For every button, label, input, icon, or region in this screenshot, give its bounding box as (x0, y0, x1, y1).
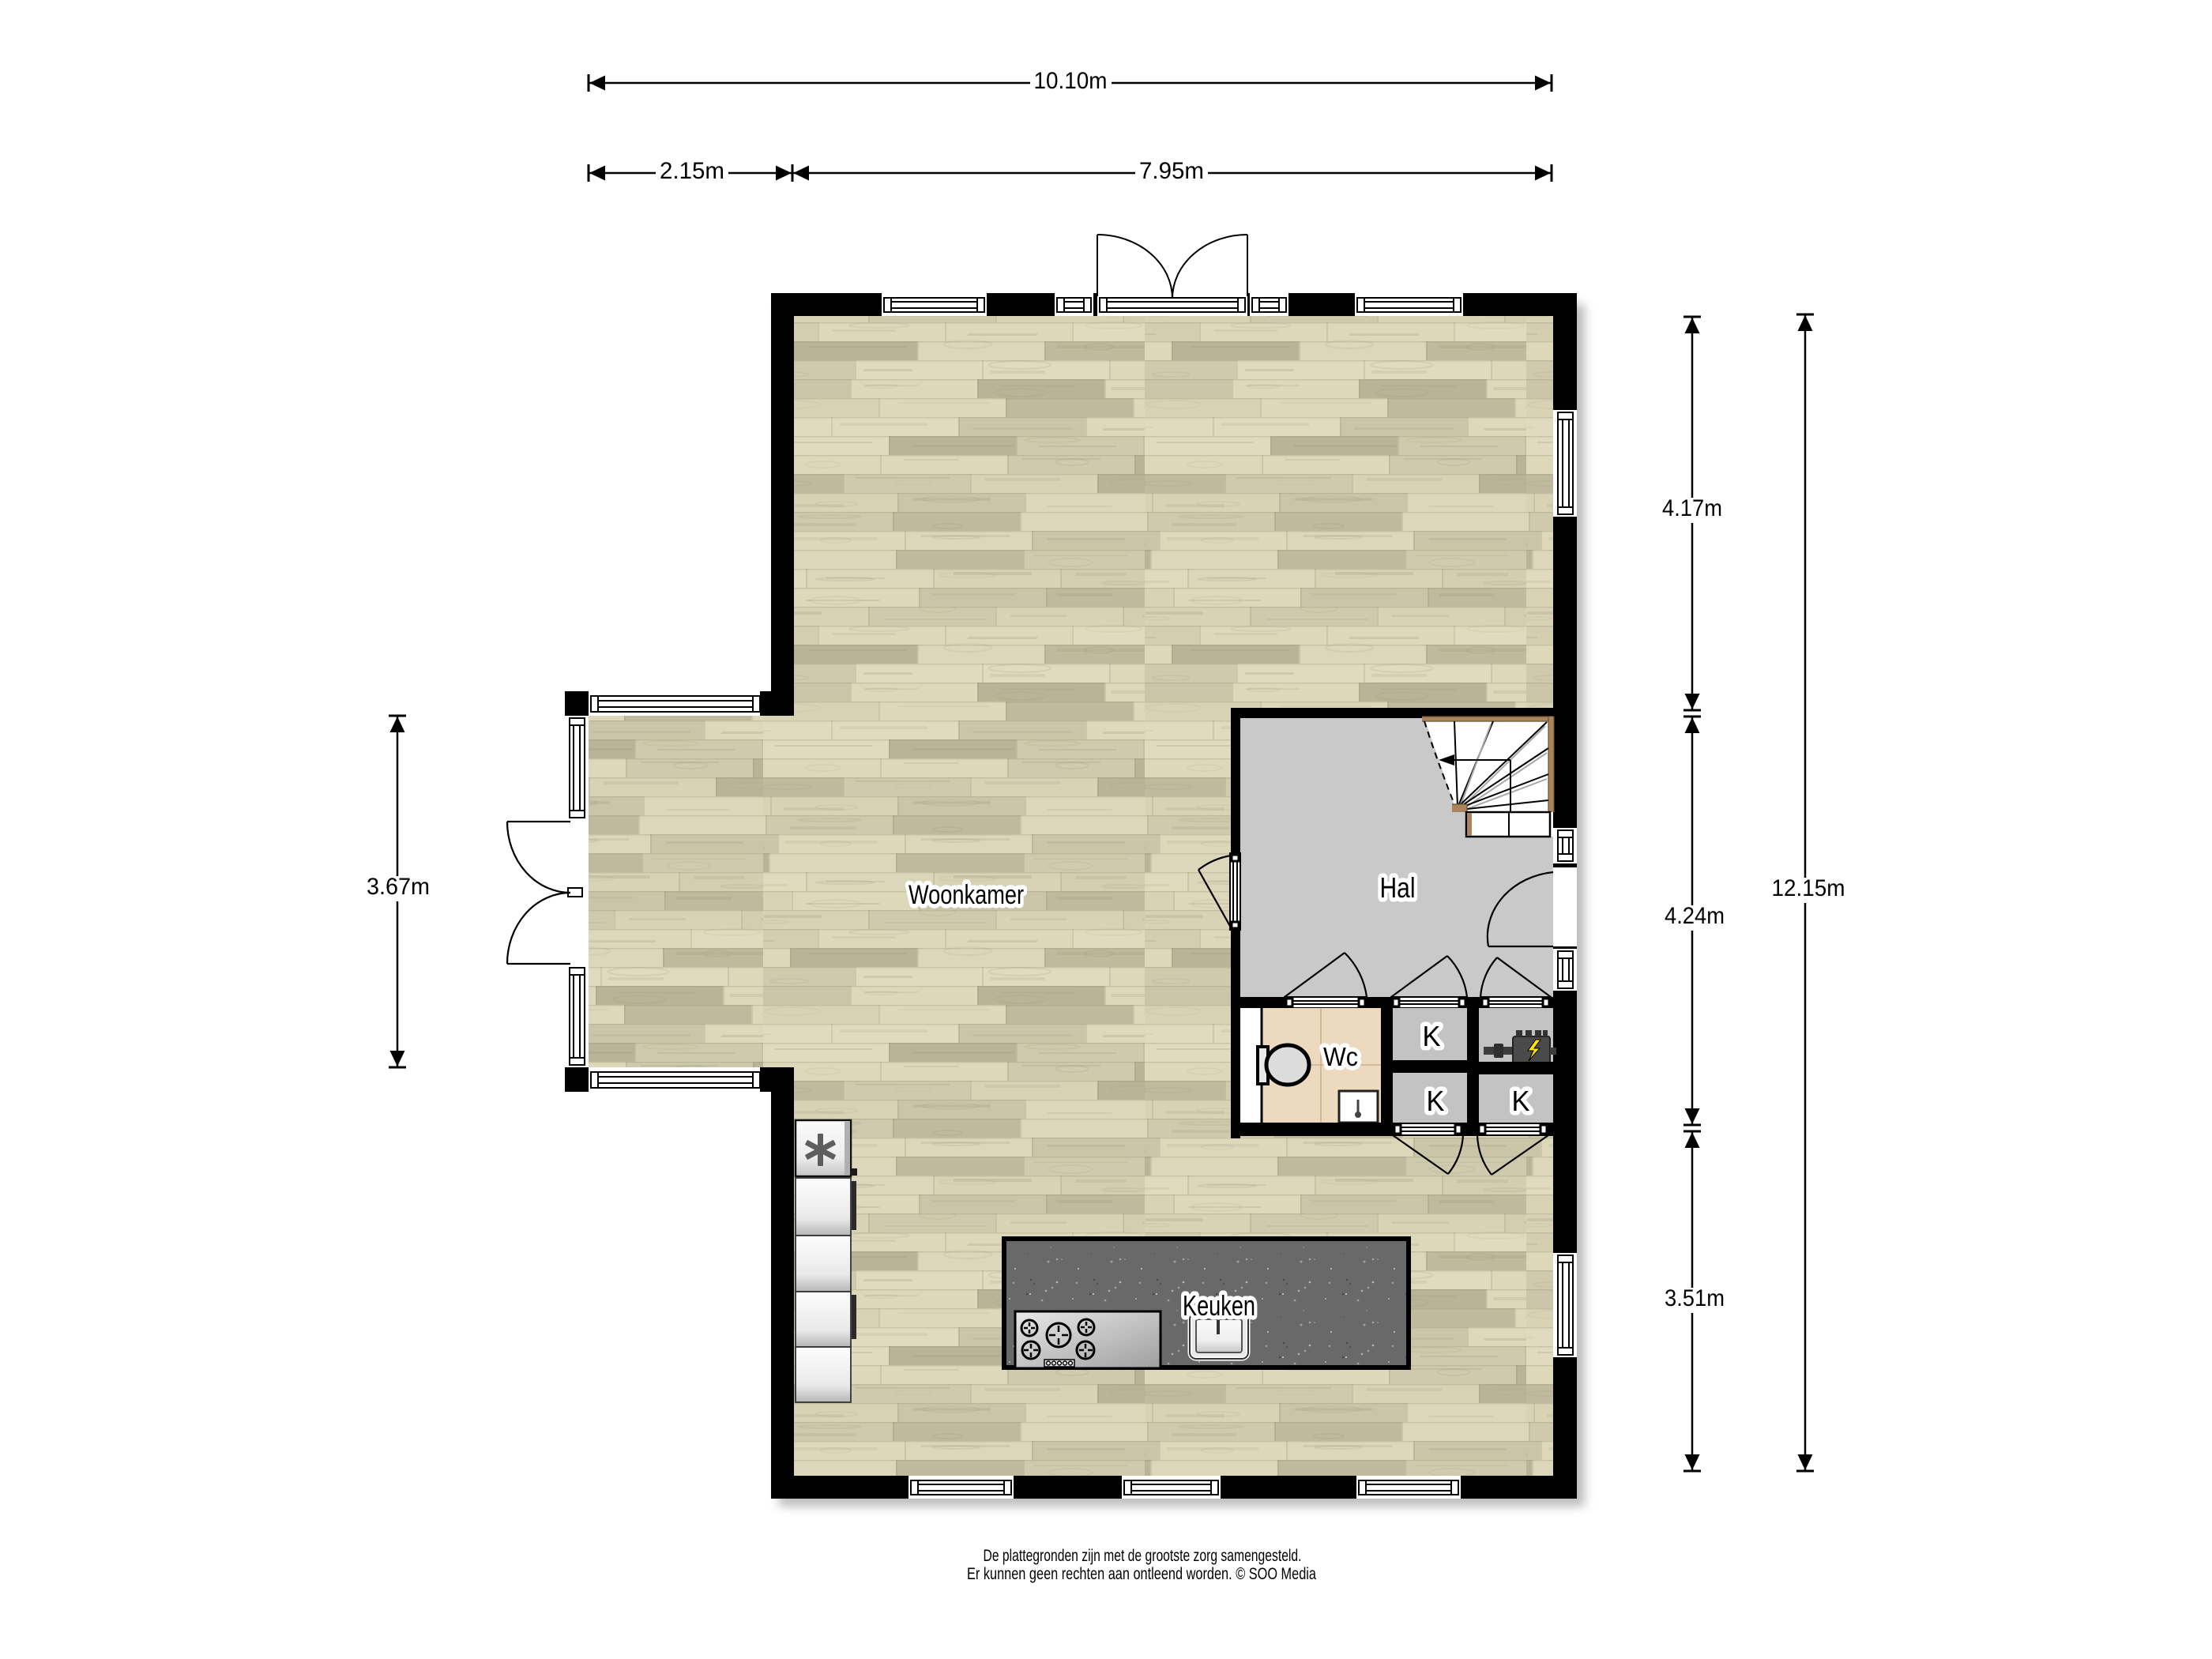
svg-text:4.17m: 4.17m (1662, 495, 1722, 521)
svg-text:Hal: Hal (1380, 871, 1416, 904)
svg-text:Keuken: Keuken (1183, 1289, 1255, 1322)
svg-text:K: K (1427, 1085, 1445, 1117)
svg-text:2.15m: 2.15m (660, 158, 724, 184)
svg-text:12.15m: 12.15m (1772, 875, 1845, 901)
svg-text:Er kunnen geen rechten aan ont: Er kunnen geen rechten aan ontleend word… (967, 1565, 1316, 1583)
svg-text:7.95m: 7.95m (1139, 158, 1204, 184)
svg-text:K: K (1423, 1020, 1441, 1052)
svg-text:Woonkamer: Woonkamer (908, 880, 1024, 910)
svg-text:3.67m: 3.67m (367, 874, 430, 900)
svg-text:10.10m: 10.10m (1034, 68, 1108, 94)
svg-text:Wc: Wc (1323, 1042, 1358, 1071)
svg-text:De plattegronden zijn met de g: De plattegronden zijn met de grootste zo… (984, 1547, 1302, 1565)
svg-text:K: K (1512, 1085, 1530, 1117)
svg-text:4.24m: 4.24m (1665, 903, 1725, 929)
svg-text:3.51m: 3.51m (1665, 1285, 1725, 1311)
